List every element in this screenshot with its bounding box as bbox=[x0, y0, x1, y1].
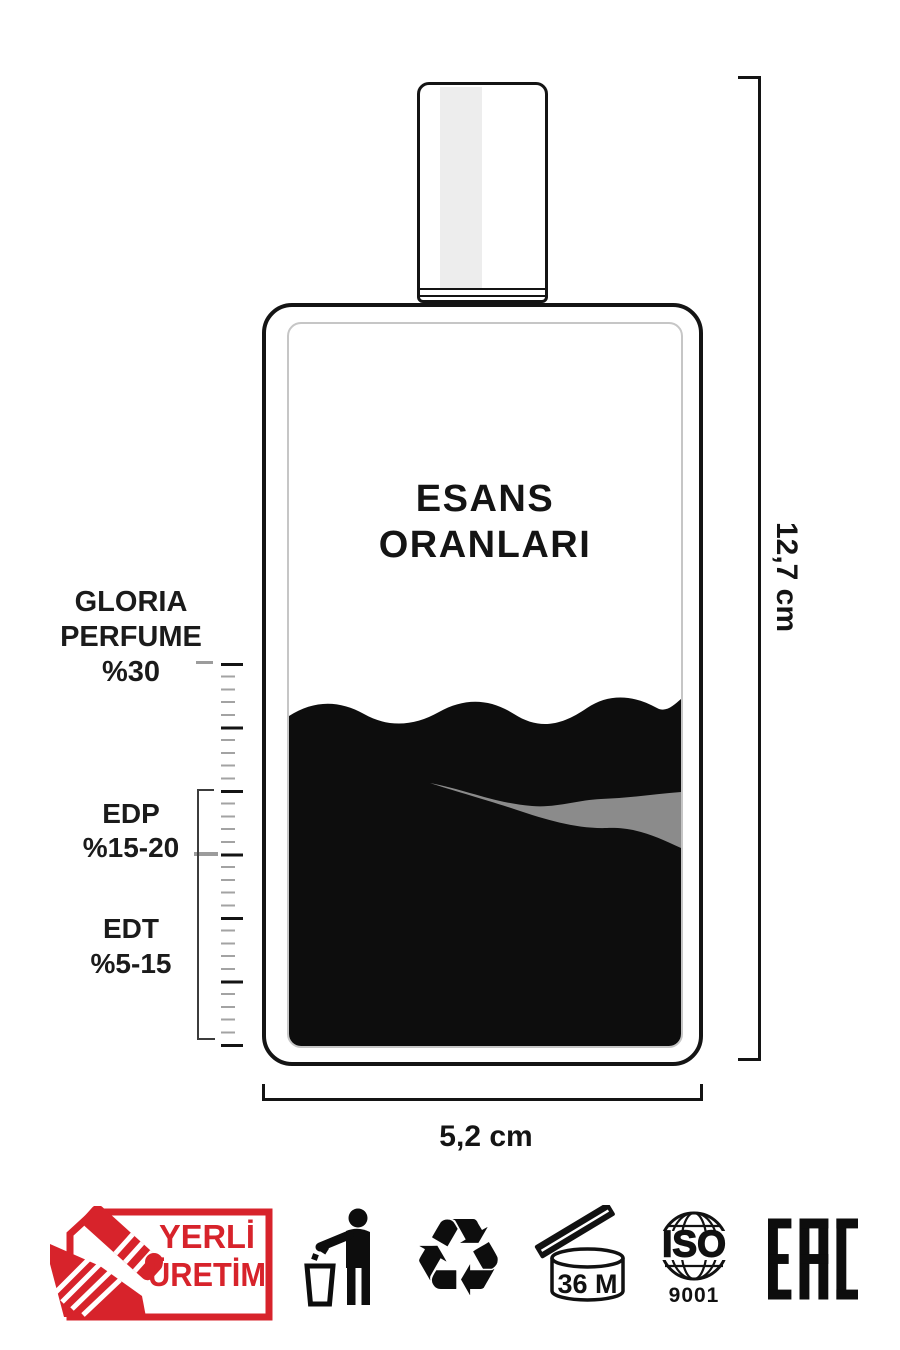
liquid-wave bbox=[289, 697, 681, 1046]
trash-bin bbox=[307, 1266, 333, 1304]
height-dimension-line bbox=[758, 76, 761, 1061]
iso-number: 9001 bbox=[669, 1284, 720, 1306]
title-line-1: ESANS bbox=[289, 476, 681, 522]
bottle-label-area: ESANS ORANLARI bbox=[287, 322, 683, 1048]
label-edt: EDT %5-15 bbox=[46, 911, 216, 981]
yerli-text: YERLİ bbox=[159, 1218, 255, 1255]
iso-9001-mark: ISO 9001 bbox=[652, 1206, 744, 1306]
gloria-line-1: GLORIA bbox=[46, 585, 216, 620]
width-dimension-label: 5,2 cm bbox=[439, 1120, 532, 1154]
bottle-cap bbox=[417, 82, 548, 303]
yerli-uretim-badge: YERLİ ÜRETİM bbox=[48, 1206, 276, 1324]
bottle-title: ESANS ORANLARI bbox=[289, 476, 681, 568]
tidy-man-icon bbox=[300, 1208, 390, 1308]
tidy-man-head bbox=[349, 1209, 368, 1228]
open-jar-icon: 36 M bbox=[528, 1205, 638, 1305]
edt-percent: %5-15 bbox=[46, 946, 216, 981]
height-dimension-tick-bottom bbox=[738, 1058, 761, 1061]
width-dimension-tick-right bbox=[700, 1084, 703, 1101]
width-dimension-tick-left bbox=[262, 1084, 265, 1101]
width-dimension-line bbox=[262, 1098, 703, 1101]
liquid-fill bbox=[289, 324, 681, 1046]
edp-percent: %15-20 bbox=[46, 831, 216, 865]
range-bracket-bottom-arm bbox=[197, 1038, 215, 1040]
cap-collar-line bbox=[418, 295, 547, 297]
perfume-infographic: ESANS ORANLARI GLORIA PERFUME %30 EDP %1… bbox=[0, 0, 900, 1350]
cap-highlight bbox=[440, 87, 482, 290]
height-dimension-label: 12,7 cm bbox=[769, 522, 803, 632]
pao-months-text: 36 M bbox=[557, 1269, 617, 1299]
ruler-major-ticks bbox=[221, 663, 243, 1047]
recycle-icon: ♻ bbox=[410, 1202, 502, 1316]
label-gloria-perfume: GLORIA PERFUME %30 bbox=[46, 585, 216, 690]
title-line-2: ORANLARI bbox=[289, 522, 681, 568]
gloria-line-2: PERFUME bbox=[46, 620, 216, 655]
height-dimension-tick-top bbox=[738, 76, 761, 79]
recycle-glyph: ♻ bbox=[410, 1197, 507, 1318]
iso-text: ISO bbox=[662, 1224, 726, 1265]
yerli-uretim-logo: YERLİ ÜRETİM bbox=[48, 1206, 276, 1324]
uretim-text: ÜRETİM bbox=[148, 1256, 266, 1293]
edp-line-1: EDP bbox=[46, 797, 216, 831]
gloria-percent: %30 bbox=[46, 655, 216, 690]
range-bracket-top-arm bbox=[197, 789, 214, 791]
eac-mark bbox=[768, 1216, 858, 1302]
cap-collar-line bbox=[418, 288, 547, 290]
tidy-man-arm bbox=[320, 1235, 349, 1247]
jar-rim bbox=[552, 1249, 623, 1267]
label-edp: EDP %15-20 bbox=[46, 797, 216, 865]
edt-line-1: EDT bbox=[46, 911, 216, 946]
